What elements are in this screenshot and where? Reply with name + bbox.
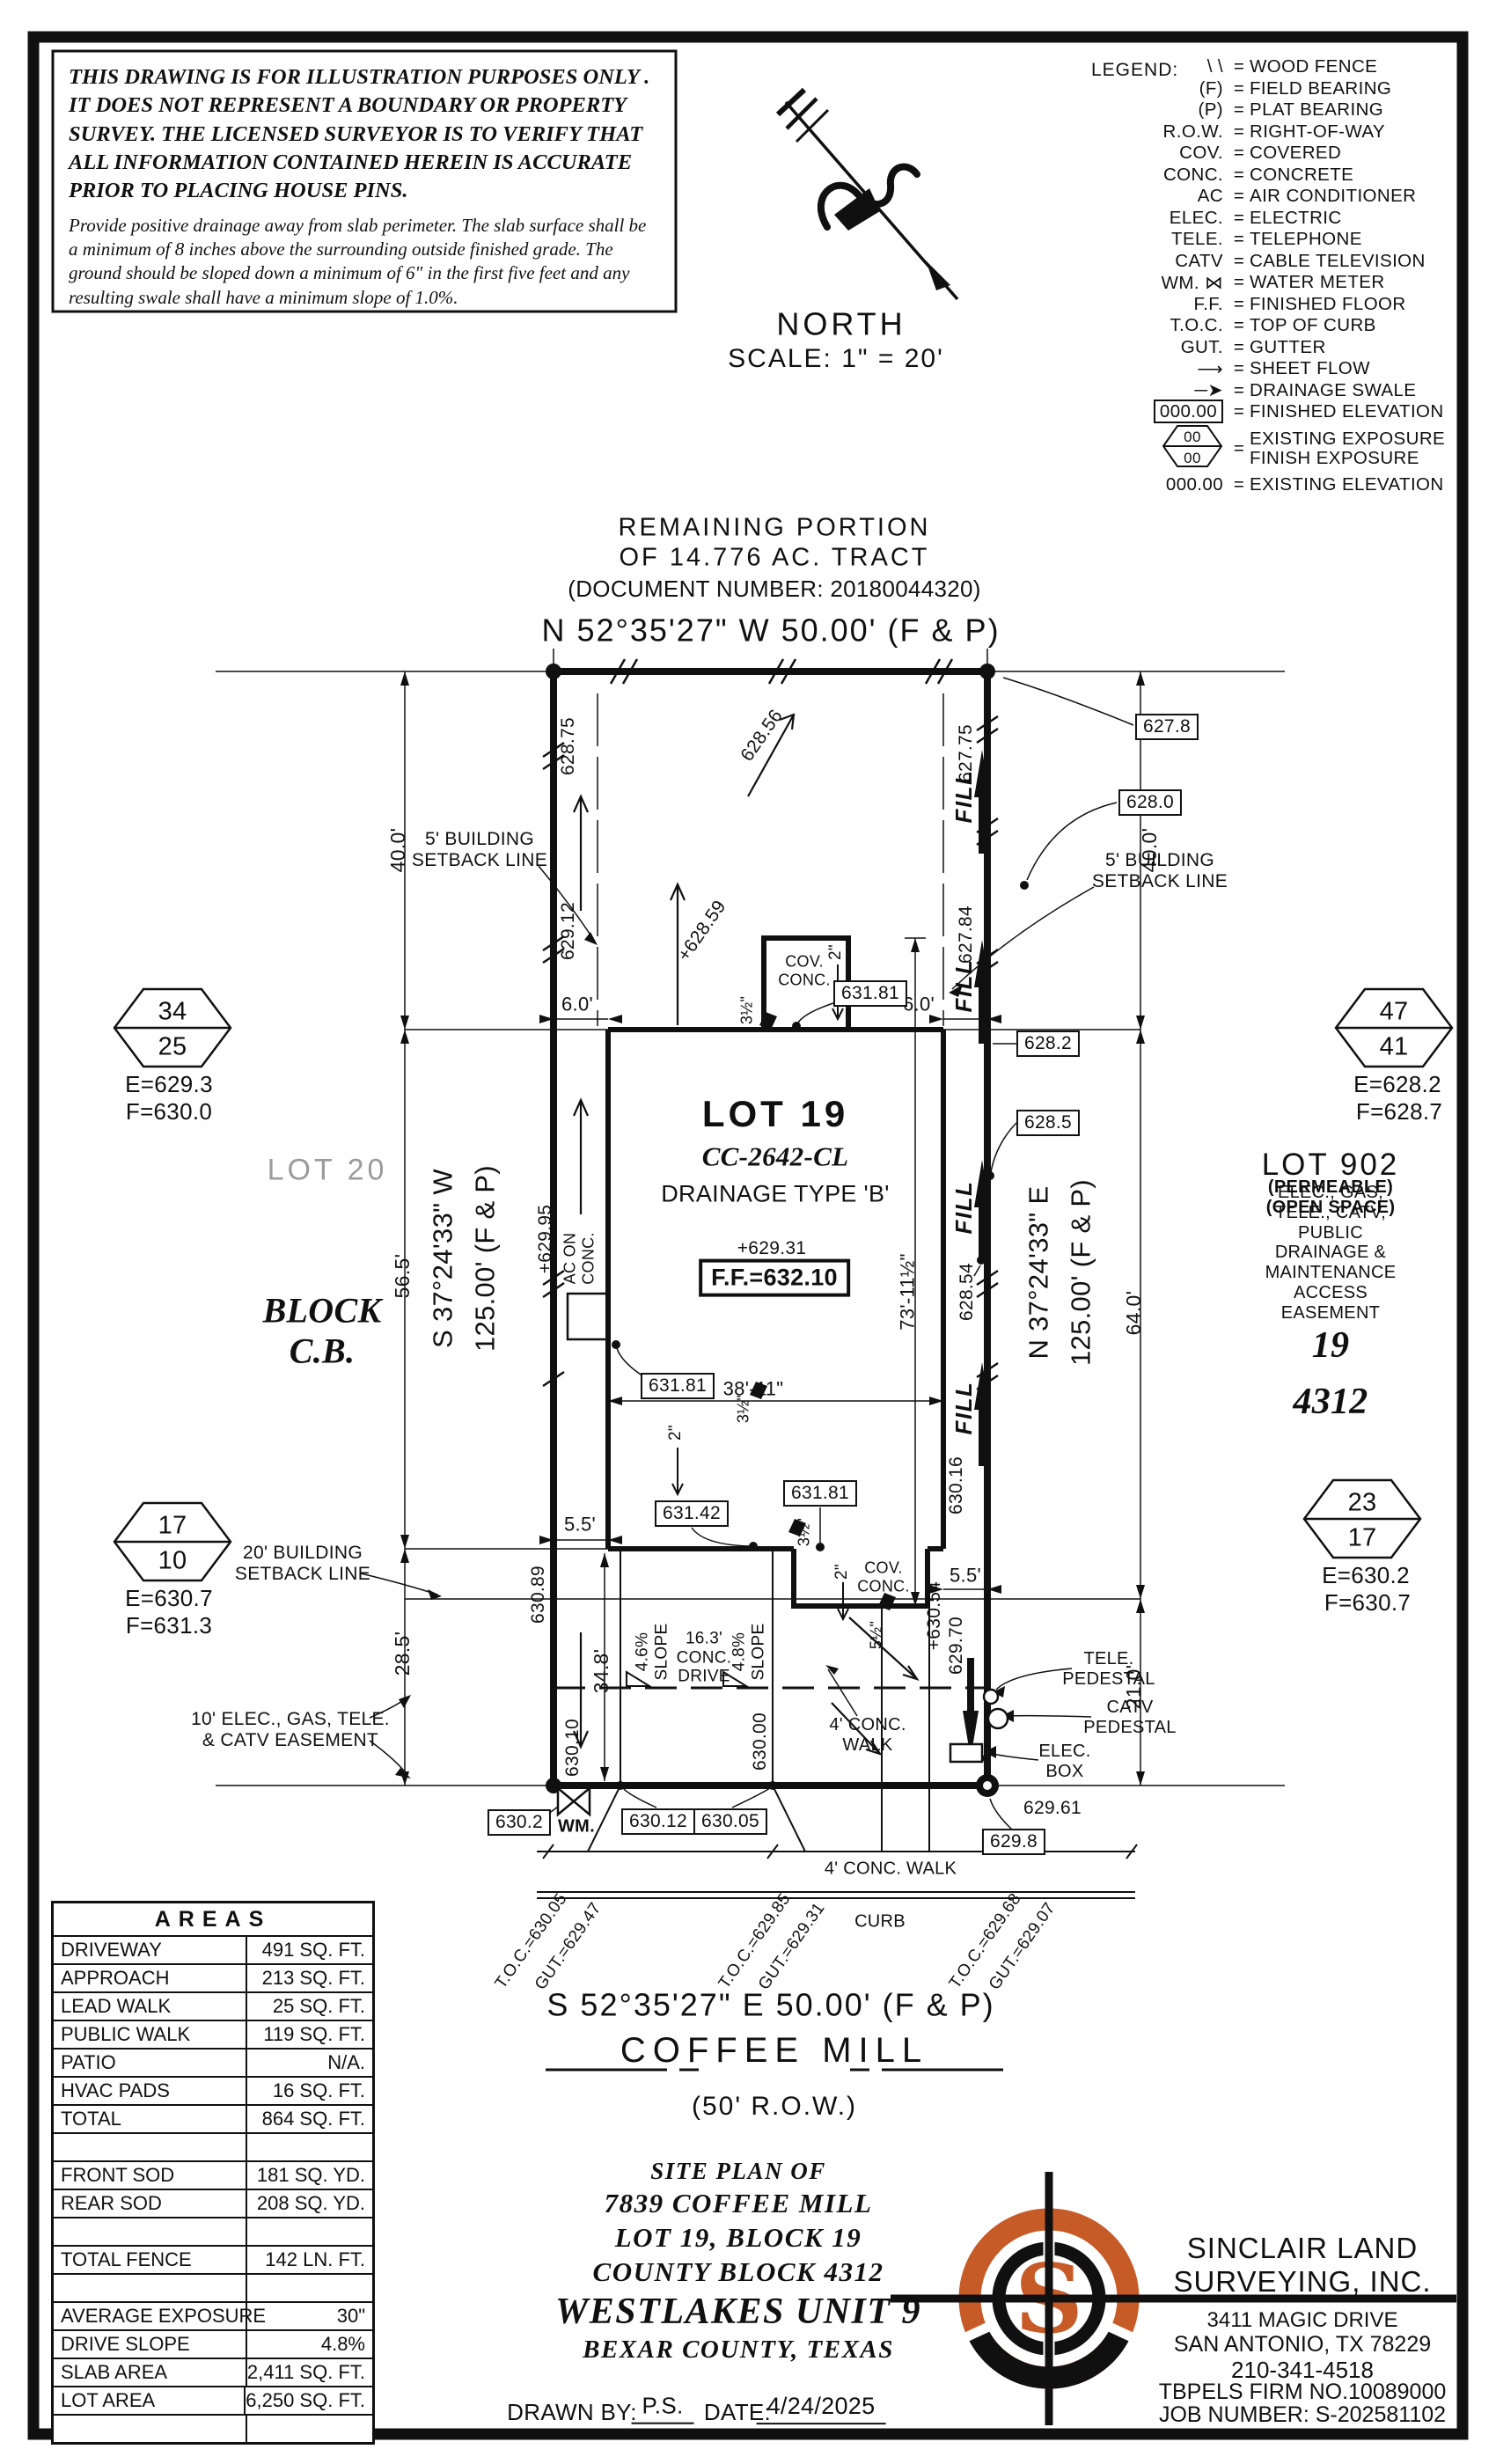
block-cb: BLOCK C.B.: [263, 1290, 382, 1370]
titleblock-line-0: SITE PLAN OF: [513, 2158, 964, 2185]
flatwork-lines: [537, 1294, 1137, 2070]
legend-description: EXISTING ELEVATION: [1250, 475, 1456, 495]
areas-row-10: [54, 2218, 372, 2247]
exposure-hexagon-symbol: 0000: [1162, 423, 1223, 469]
legend-equals: =: [1228, 56, 1250, 77]
legend-symbol: (P): [1089, 99, 1228, 121]
areas-row-14: DRIVE SLOPE4.8%: [54, 2331, 372, 2359]
disclaimer-box: THIS DRAWING IS FOR ILLUSTRATION PURPOSE…: [53, 51, 676, 312]
bearing-north: N 52°35'27" W 50.00' (F & P): [541, 612, 1000, 648]
titleblock-line-1: 7839 COFFEE MILL: [513, 2188, 964, 2219]
lot20-label: LOT 20: [268, 1154, 388, 1188]
legend-description: FINISHED FLOOR: [1250, 295, 1456, 314]
legend-description: AIR CONDITIONER: [1250, 187, 1456, 206]
spot-629-95: +629.95: [535, 1205, 556, 1274]
elev-629-12: 629.12: [558, 902, 579, 960]
areas-value: 119 SQ. FT.: [247, 2021, 372, 2048]
bearing-west-2: 125.00' (F & P): [469, 1165, 500, 1352]
legend-description: FIELD BEARING: [1250, 79, 1456, 99]
areas-row-11: TOTAL FENCE142 LN. FT.: [54, 2247, 372, 2275]
legend-symbol: AC: [1089, 186, 1228, 207]
legend-row-10: WM. ⋈=WATER METER: [1089, 272, 1456, 294]
legend-description: FINISHED ELEVATION: [1250, 402, 1456, 422]
areas-table-rows: DRIVEWAY491 SQ. FT.APPROACH213 SQ. FT.LE…: [54, 1937, 372, 2442]
disclaimer-title: THIS DRAWING IS FOR ILLUSTRATION PURPOSE…: [69, 63, 660, 206]
legend-description: CABLE TELEVISION: [1250, 252, 1456, 271]
dim-2in-top: 2": [826, 944, 846, 960]
areas-label: SLAB AREA: [54, 2359, 247, 2386]
areas-label: TOTAL FENCE: [54, 2247, 247, 2273]
dim-73-11: 73'-11½": [896, 1253, 918, 1330]
areas-row-3: PUBLIC WALK119 SQ. FT.: [54, 2021, 372, 2050]
dim-5-5-left: 5.5': [564, 1513, 596, 1535]
areas-table-title: AREAS: [54, 1903, 372, 1937]
legend-equals: =: [1228, 121, 1250, 143]
titleblock-line-4: WESTLAKES UNIT 9: [513, 2291, 964, 2333]
bearing-west-1: S 37°24'33" W: [427, 1169, 458, 1348]
legend-equals: =: [1228, 438, 1250, 459]
areas-row-13: AVERAGE EXPOSURE30": [54, 2303, 372, 2331]
dim-2in-bot: 2": [832, 1564, 852, 1580]
dim-6-right: 6.0': [903, 993, 935, 1015]
setback20-label: 20' BUILDING SETBACK LINE: [235, 1543, 370, 1585]
drawn-by-label: DRAWN BY:: [507, 2400, 637, 2426]
areas-label: TOTAL: [54, 2106, 247, 2132]
svg-text:00: 00: [1184, 429, 1201, 445]
areas-label: LOT AREA: [54, 2387, 246, 2414]
finelev-628-5: 628.5: [1016, 1110, 1080, 1136]
legend-row-16: 000.00=FINISHED ELEVATION: [1089, 401, 1456, 423]
areas-row-17: [54, 2416, 372, 2442]
street-name: COFFEE MILL: [620, 2031, 928, 2072]
slope-4-8: 4.8% SLOPE: [730, 1624, 767, 1681]
areas-value: N/A.: [247, 2050, 372, 2076]
legend-symbol: WM. ⋈: [1089, 272, 1228, 294]
disclaimer-body: Provide positive drainage away from slab…: [69, 214, 660, 310]
exposure-f-right-top: F=628.7: [1356, 1099, 1442, 1126]
legend-row-12: T.O.C.=TOP OF CURB: [1089, 315, 1456, 337]
drainage-type: DRAINAGE TYPE 'B': [661, 1181, 889, 1208]
legend-symbol: \ \: [1089, 56, 1228, 77]
areas-label: [54, 2416, 247, 2442]
north-arrow: [778, 90, 957, 299]
areas-value: 2,411 SQ. FT.: [247, 2359, 372, 2386]
areas-label: REAR SOD: [54, 2190, 247, 2217]
dim-3half-bot: 3½": [796, 1518, 814, 1546]
areas-row-16: LOT AREA6,250 SQ. FT.: [54, 2387, 372, 2416]
scale-label: SCALE: 1" = 20': [728, 344, 944, 374]
dim-34-8: 34.8': [590, 1649, 612, 1694]
fill-label-4: FILL: [951, 1382, 978, 1435]
hex-23: 23: [1348, 1488, 1377, 1517]
slope-4-6: 4.6% SLOPE: [633, 1624, 671, 1681]
legend-symbol: 000.00: [1089, 401, 1228, 422]
areas-value: [247, 2134, 372, 2160]
company-job-number: JOB NUMBER: S-202581102: [1144, 2402, 1461, 2428]
dimension-lines: [216, 649, 1285, 1786]
elev-630-00: 630.00: [750, 1712, 771, 1771]
legend-description: TOP OF CURB: [1250, 316, 1456, 335]
exposure-e-left: E=629.3: [125, 1072, 213, 1098]
legend-equals: =: [1228, 380, 1250, 401]
areas-label: DRIVE SLOPE: [54, 2331, 247, 2358]
elev-629-61: 629.61: [1023, 1798, 1082, 1819]
drawn-by-value: P.S.: [632, 2394, 694, 2424]
elev-627-84: 627.84: [956, 906, 977, 964]
county-block-4312: 4312: [1293, 1382, 1368, 1424]
title-block: SITE PLAN OF7839 COFFEE MILLLOT 19, BLOC…: [513, 2158, 964, 2367]
legend-equals: =: [1228, 474, 1250, 495]
areas-value: 25 SQ. FT.: [247, 1993, 372, 2020]
legend-row-2: (P)=PLAT BEARING: [1089, 99, 1456, 121]
public-walk-label: 4' CONC. WALK: [825, 1859, 957, 1880]
exposure-f-right-bot: F=630.7: [1324, 1590, 1411, 1617]
site-plan-sheet: S THIS DRAWING IS FOR ILLUSTRATION PURPO…: [0, 0, 1496, 2464]
areas-value: 142 LN. FT.: [247, 2247, 372, 2273]
legend-symbol: 000.00: [1089, 474, 1228, 495]
areas-label: HVAC PADS: [54, 2078, 247, 2104]
catv-pedestal-label: CATV PEDESTAL: [1083, 1698, 1176, 1738]
legend-description: GUTTER: [1250, 338, 1456, 357]
legend-row-4: COV.=COVERED: [1089, 143, 1456, 165]
finelev-628-0: 628.0: [1118, 789, 1182, 816]
areas-label: [54, 2218, 247, 2245]
areas-label: APPROACH: [54, 1965, 247, 1991]
tract-doc: (DOCUMENT NUMBER: 20180044320): [568, 576, 980, 603]
spot-629-31: +629.31: [737, 1238, 807, 1259]
legend-equals: =: [1228, 272, 1250, 293]
titleblock-line-2: LOT 19, BLOCK 19: [513, 2222, 964, 2254]
legend-row-13: GUT.=GUTTER: [1089, 337, 1456, 359]
sheet-flow-arrows: [574, 715, 917, 1754]
dim-40-left: 40.0': [386, 828, 409, 873]
finelev-631-81-bot: 631.81: [783, 1480, 857, 1507]
areas-row-6: TOTAL864 SQ. FT.: [54, 2106, 372, 2134]
legend-description: EXISTING EXPOSURE FINISH EXPOSURE: [1250, 429, 1456, 467]
areas-value: 4.8%: [247, 2331, 372, 2358]
legend-description: COVERED: [1250, 143, 1456, 163]
legend-symbol: GUT.: [1089, 337, 1228, 358]
cov-conc-top: COV. CONC.: [778, 952, 831, 988]
legend-symbol: CATV: [1089, 251, 1228, 272]
hex-47: 47: [1380, 997, 1409, 1026]
areas-label: PUBLIC WALK: [54, 2021, 247, 2048]
legend-row-8: TELE.=TELEPHONE: [1089, 229, 1456, 251]
areas-label: PATIO: [54, 2050, 247, 2076]
lead-walk-label: 4' CONC. WALK: [829, 1715, 906, 1756]
elec-box-label: ELEC. BOX: [1038, 1742, 1090, 1782]
legend-description: RIGHT-OF-WAY: [1250, 122, 1456, 142]
areas-value: [247, 2275, 372, 2301]
finished-elevation-symbol: 000.00: [1154, 400, 1223, 423]
hex-17r: 17: [1348, 1523, 1377, 1552]
areas-value: 6,250 SQ. FT.: [246, 2387, 372, 2414]
lot902-easement: ELEC., GAS, TELE., CATV, PUBLIC DRAINAGE…: [1248, 1183, 1413, 1324]
finelev-630-12: 630.12: [621, 1808, 695, 1835]
easement10-label: 10' ELEC., GAS, TELE. & CATV EASEMENT: [191, 1709, 390, 1751]
areas-value: 864 SQ. FT.: [247, 2106, 372, 2132]
legend-description: CONCRETE: [1250, 165, 1456, 185]
finelev-631-81-top: 631.81: [833, 980, 907, 1007]
legend-equals: =: [1228, 401, 1250, 422]
legend-row-3: R.O.W.=RIGHT-OF-WAY: [1089, 121, 1456, 143]
areas-value: 213 SQ. FT.: [247, 1965, 372, 1991]
legend-row-14: ⟶=SHEET FLOW: [1089, 358, 1456, 380]
hex-17l: 17: [158, 1511, 187, 1540]
areas-label: DRIVEWAY: [54, 1937, 247, 1963]
cov-conc-bot: COV. CONC.: [857, 1558, 910, 1595]
tele-pedestal-label: TELE. PEDESTAL: [1062, 1649, 1155, 1690]
legend-equals: =: [1228, 143, 1250, 164]
dim-28-5: 28.5': [391, 1632, 414, 1676]
finelev-628-2: 628.2: [1016, 1030, 1080, 1057]
areas-value: [247, 2218, 372, 2245]
areas-label: FRONT SOD: [54, 2162, 247, 2189]
finelev-631-81-mid: 631.81: [641, 1373, 715, 1399]
areas-value: 16 SQ. FT.: [247, 2078, 372, 2104]
areas-row-1: APPROACH213 SQ. FT.: [54, 1965, 372, 1993]
areas-label: [54, 2275, 247, 2301]
areas-value: [247, 2416, 372, 2442]
areas-row-9: REAR SOD208 SQ. YD.: [54, 2190, 372, 2218]
elev-628-54: 628.54: [957, 1263, 978, 1321]
finelev-630-05: 630.05: [693, 1808, 767, 1835]
legend-equals: =: [1228, 78, 1250, 99]
ac-on-conc: AC ON CONC.: [561, 1232, 597, 1285]
titleblock-line-3: COUNTY BLOCK 4312: [513, 2256, 964, 2288]
legend-row-7: ELEC.=ELECTRIC: [1089, 208, 1456, 230]
fill-label-1: FILL: [951, 770, 978, 824]
areas-value: 208 SQ. YD.: [247, 2190, 372, 2217]
areas-row-5: HVAC PADS16 SQ. FT.: [54, 2078, 372, 2106]
areas-label: LEAD WALK: [54, 1993, 247, 2020]
wm-label: WM.: [558, 1817, 595, 1837]
legend-equals: =: [1228, 229, 1250, 250]
dim-5-5-right: 5.5': [950, 1564, 981, 1586]
ff-elevation: F.F.=632.10: [699, 1259, 850, 1297]
legend-equals: =: [1228, 294, 1250, 315]
dim-38-11: 38'-11": [723, 1377, 784, 1399]
areas-row-15: SLAB AREA2,411 SQ. FT.: [54, 2359, 372, 2387]
corner-monument: [983, 1781, 992, 1790]
fill-label-3: FILL: [951, 1181, 978, 1235]
legend-equals: =: [1228, 315, 1250, 336]
legend-equals: =: [1228, 208, 1250, 229]
dim-56-5: 56.5': [391, 1254, 414, 1299]
legend-symbol: R.O.W.: [1089, 121, 1228, 143]
areas-row-7: [54, 2134, 372, 2162]
legend-row-5: CONC.=CONCRETE: [1089, 165, 1456, 187]
legend-description: DRAINAGE SWALE: [1250, 381, 1456, 400]
elev-630-10: 630.10: [562, 1719, 583, 1777]
legend-symbol: T.O.C.: [1089, 315, 1228, 336]
elev-630-16: 630.16: [946, 1456, 967, 1514]
bearing-east-2: 125.00' (F & P): [1065, 1179, 1096, 1366]
legend: \ \=WOOD FENCE(F)=FIELD BEARING(P)=PLAT …: [1089, 56, 1456, 495]
dim-3half-mid: 3½": [735, 1395, 753, 1423]
legend-row-11: F.F.=FINISHED FLOOR: [1089, 294, 1456, 316]
legend-row-18: 000.00=EXISTING ELEVATION: [1089, 474, 1456, 496]
exposure-e-right-bot: E=630.2: [1322, 1563, 1410, 1589]
legend-description: TELEPHONE: [1250, 230, 1456, 249]
legend-description: PLAT BEARING: [1250, 100, 1456, 120]
areas-label: AVERAGE EXPOSURE: [54, 2303, 247, 2329]
areas-value: 181 SQ. YD.: [247, 2162, 372, 2189]
legend-symbol: ─➤: [1089, 379, 1228, 401]
legend-symbol: TELE.: [1089, 229, 1228, 250]
dim-5half: 5½": [868, 1621, 886, 1649]
dim-3half-top: 3½": [738, 996, 757, 1024]
legend-symbol: COV.: [1089, 143, 1228, 164]
legend-symbol: (F): [1089, 78, 1228, 99]
plan-number: CC-2642-CL: [702, 1140, 849, 1171]
bearing-south: S 52°35'27" E 50.00' (F & P): [546, 1986, 994, 2022]
legend-symbol: 0000: [1089, 423, 1228, 474]
legend-symbol: CONC.: [1089, 165, 1228, 186]
finelev-631-42: 631.42: [655, 1500, 729, 1527]
utility-symbols: [558, 1690, 1008, 1815]
legend-row-1: (F)=FIELD BEARING: [1089, 78, 1456, 100]
legend-description: ELECTRIC: [1250, 209, 1456, 228]
curb-label: CURB: [854, 1912, 906, 1932]
setback5-left-label: 5' BUILDING SETBACK LINE: [412, 829, 547, 871]
legend-description: WOOD FENCE: [1250, 57, 1456, 77]
legend-symbol: ELEC.: [1089, 208, 1228, 229]
dim-2in-mid: 2": [666, 1425, 686, 1441]
fill-label-2: FILL: [951, 959, 978, 1013]
legend-description: SHEET FLOW: [1250, 359, 1456, 378]
areas-row-0: DRIVEWAY491 SQ. FT.: [54, 1937, 372, 1965]
hex-34: 34: [158, 997, 187, 1026]
date-value: 4/24/2025: [757, 2393, 886, 2424]
legend-row-0: \ \=WOOD FENCE: [1089, 56, 1456, 78]
areas-row-2: LEAD WALK25 SQ. FT.: [54, 1993, 372, 2021]
legend-equals: =: [1228, 358, 1250, 379]
legend-equals: =: [1228, 99, 1250, 121]
areas-value: 30": [247, 2303, 372, 2329]
legend-row-17: 0000=EXISTING EXPOSURE FINISH EXPOSURE: [1089, 423, 1456, 474]
dim-40-right: 40.0': [1138, 828, 1161, 873]
street-row: (50' R.O.W.): [692, 2092, 857, 2122]
legend-equals: =: [1228, 251, 1250, 272]
legend-row-9: CATV=CABLE TELEVISION: [1089, 251, 1456, 273]
svg-text:00: 00: [1184, 450, 1201, 466]
legend-description: WATER METER: [1250, 273, 1456, 292]
elev-630-89: 630.89: [528, 1566, 549, 1624]
titleblock-line-5: BEXAR COUNTY, TEXAS: [513, 2336, 964, 2365]
drive-16-3: 16.3' CONC. DRIVE: [677, 1630, 732, 1687]
areas-row-8: FRONT SOD181 SQ. YD.: [54, 2162, 372, 2190]
legend-equals: =: [1228, 186, 1250, 207]
exposure-f-left-bot: F=631.3: [126, 1613, 212, 1639]
company-name-2: SURVEYING, INC.: [1144, 2265, 1461, 2299]
dim-64: 64.0': [1122, 1291, 1145, 1336]
company-address-2: SAN ANTONIO, TX 78229: [1144, 2332, 1461, 2358]
areas-row-4: PATION/A.: [54, 2050, 372, 2078]
legend-symbol: ⟶: [1089, 358, 1228, 380]
elev-629-70: 629.70: [946, 1617, 967, 1675]
areas-table: AREAS DRIVEWAY491 SQ. FT.APPROACH213 SQ.…: [51, 1901, 375, 2445]
dim-6-left: 6.0': [561, 993, 593, 1015]
areas-value: 491 SQ. FT.: [247, 1937, 372, 1963]
elev-628-75: 628.75: [558, 717, 579, 775]
finelev-627-8: 627.8: [1135, 714, 1199, 740]
finelev-630-2: 630.2: [488, 1809, 551, 1836]
legend-row-15: ─➤=DRAINAGE SWALE: [1089, 380, 1456, 402]
legend-equals: =: [1228, 337, 1250, 358]
legend-equals: =: [1228, 165, 1250, 186]
finelev-629-8: 629.8: [982, 1829, 1045, 1855]
legend-symbol: F.F.: [1089, 294, 1228, 315]
areas-label: [54, 2134, 247, 2160]
exposure-e-right-top: E=628.2: [1353, 1072, 1441, 1098]
spot-630-54: +630.54: [924, 1581, 945, 1651]
hex-25: 25: [158, 1032, 187, 1061]
tract-line2: OF 14.776 AC. TRACT: [619, 543, 929, 572]
hex-10: 10: [158, 1546, 187, 1575]
company-firm-number: TBPELS FIRM NO.10089000: [1144, 2380, 1461, 2405]
legend-row-6: AC=AIR CONDITIONER: [1089, 186, 1456, 208]
exposure-f-left: F=630.0: [126, 1099, 212, 1126]
hex-41: 41: [1380, 1032, 1409, 1061]
block-19: 19: [1312, 1325, 1350, 1368]
areas-row-12: [54, 2275, 372, 2303]
company-name-1: SINCLAIR LAND: [1144, 2232, 1461, 2265]
lot19-label: LOT 19: [702, 1093, 848, 1135]
company-address-1: 3411 MAGIC DRIVE: [1144, 2308, 1461, 2333]
exposure-e-left-bot: E=630.7: [125, 1586, 213, 1612]
bearing-east-1: N 37°24'33" E: [1023, 1186, 1053, 1360]
tract-line1: REMAINING PORTION: [619, 513, 931, 542]
north-label: NORTH: [776, 305, 906, 341]
